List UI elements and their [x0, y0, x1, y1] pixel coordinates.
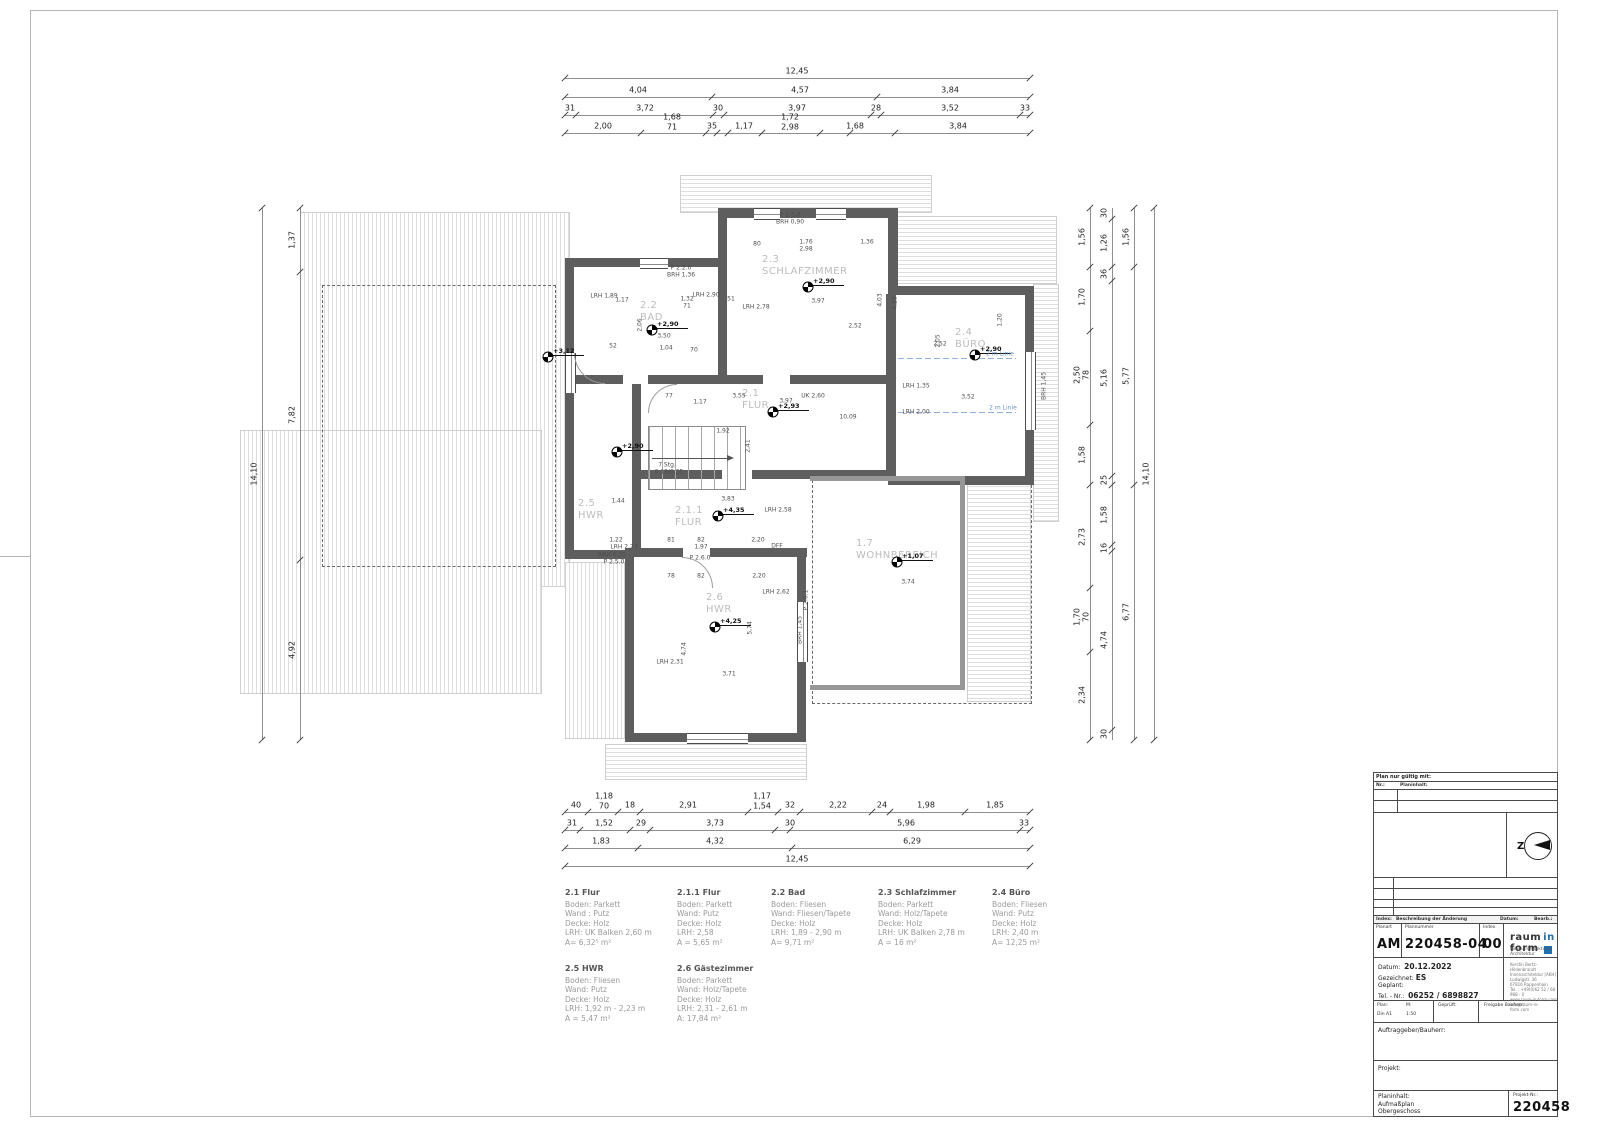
wall — [748, 733, 806, 742]
plan-annotation: 51 — [727, 296, 735, 303]
dim-label: 1,68 — [663, 113, 681, 122]
plan-annotation: BRH 1,45 — [1041, 372, 1048, 400]
geprueft-label: Geprüft: — [1438, 1003, 1457, 1008]
wall — [565, 258, 574, 353]
dim-label: 1,17 — [735, 122, 753, 131]
legend-entry-title: 2.5 HWR — [565, 964, 675, 974]
elevation-marker-icon — [710, 622, 721, 633]
dim-label: 5,77 — [1122, 367, 1131, 385]
dim-label: 1,83 — [592, 837, 610, 846]
elevation-marker-icon — [768, 407, 779, 418]
index-strip: Index: Beschreibung der Änderung Datum: … — [1374, 916, 1557, 924]
dim-label: 12,45 — [786, 855, 809, 864]
plan-annotation: DFF — [771, 543, 783, 550]
plan-annotation: 3,71 — [722, 671, 735, 678]
plan-annotation: P 2.5.0 — [604, 559, 625, 566]
wall — [625, 733, 687, 742]
legend-entry-line: LRH: 1,89 - 2,90 m — [771, 928, 881, 938]
elevation-marker-icon — [612, 447, 623, 458]
plan-annotation: 80 — [753, 241, 761, 248]
address-line: Tel. : +49(0)62 52 / 68 988 - 0 — [1510, 987, 1557, 997]
dim-label: 16 — [1100, 543, 1109, 553]
geplant-line: Geplant: — [1378, 982, 1404, 989]
dim-label: 1,98 — [917, 801, 935, 810]
legend-entry-line: Boden: Parkett — [565, 900, 675, 910]
dim-label: 30 — [713, 104, 723, 113]
legend-entry-line: Wand: Putz — [565, 985, 675, 995]
dim-label: 5,16 — [1100, 369, 1109, 387]
room-label-text: 2.4 — [955, 327, 986, 339]
plan-annotation: 1,22 — [609, 537, 622, 544]
planinhalt-line1: Aufmaßplan — [1378, 1101, 1414, 1108]
title-block: Plan nur gültig mit: Nr.: Planinhalt: Z … — [1373, 772, 1558, 1117]
two-meter-line — [898, 358, 1016, 359]
plan-annotation: BRH 0,90 — [776, 219, 804, 226]
address-line: Kerstin Bertz-Hildenbrandt — [1510, 962, 1557, 972]
legend-entry-line: Decke: Holz — [878, 919, 988, 929]
dim-label: 31 — [565, 104, 575, 113]
wall — [888, 286, 1034, 295]
dim-label: 30 — [785, 819, 795, 828]
dim-line — [1134, 208, 1135, 740]
dim-label: 3,97 — [788, 104, 806, 113]
dim-label: 6,29 — [903, 837, 921, 846]
plan-annotation: 4,23 — [892, 296, 899, 309]
legend-entry-line: A= 6,32⁵ m² — [565, 938, 675, 948]
plan-annotation: 1,36 — [860, 239, 873, 246]
plan-annotation: P 2.2.0 — [671, 265, 692, 272]
planart-value: AM — [1377, 937, 1401, 952]
legend-entry-line: Boden: Parkett — [878, 900, 988, 910]
projekt-row: Projekt: — [1374, 1061, 1557, 1091]
dim-line — [1154, 208, 1155, 740]
legend-entry-line: Decke: Holz — [677, 995, 787, 1005]
dim-label: 78 — [1082, 370, 1091, 380]
plan-annotation: BRH 0,35 — [598, 552, 626, 559]
window — [1025, 352, 1036, 430]
index-empty-row-2 — [1374, 801, 1557, 813]
plan-format: Din A1 — [1377, 1012, 1392, 1017]
plan-annotation: 3,55 — [732, 393, 745, 400]
plan-annotation: 82 — [697, 573, 705, 580]
rev-row-1 — [1374, 878, 1557, 889]
dim-label: 29 — [636, 819, 646, 828]
logo-raum: raum — [1510, 932, 1541, 943]
dim-label: 2,98 — [781, 123, 799, 132]
logo-in: in — [1543, 932, 1555, 943]
plan-id-row: Planart Plannummer Index AM 220458-04 00… — [1374, 924, 1557, 958]
plan-annotation: 77 — [665, 393, 673, 400]
window — [816, 208, 846, 220]
plan-annotation: LRH 2,00 — [902, 409, 929, 416]
dim-label: 36 — [1100, 269, 1109, 279]
plannummer-label: Plannummer — [1405, 925, 1434, 930]
projektnr-label: Projekt-Nr.: — [1513, 1093, 1538, 1098]
dim-label: 1,18 — [595, 792, 613, 801]
dim-label: 14,10 — [1142, 463, 1151, 486]
plan-annotation: 71 — [683, 303, 691, 310]
plan-annotation: 3,97 — [811, 298, 824, 305]
roof-hatch — [605, 744, 807, 780]
plan-annotation: 3,50 — [657, 333, 670, 340]
plan-annotation: 0,19/0,25 — [655, 469, 684, 476]
room-label-text: 2.2 — [640, 300, 663, 312]
plan-annotation: LRH 2,31 — [656, 659, 683, 666]
dim-label: 2,91 — [679, 801, 697, 810]
dim-line — [565, 133, 1030, 134]
plan-annotation: 1,97 — [694, 544, 707, 551]
dashed-outline — [322, 285, 556, 567]
planinhalt-label: Planinhalt: — [1378, 1093, 1410, 1100]
valid-strip: Plan nur gültig mit: — [1374, 773, 1557, 782]
legend-entry-line: Decke: Holz — [565, 919, 675, 929]
room-label-2.1.1: 2.1.1FLUR — [675, 505, 703, 529]
plan-annotation: 4,03 — [877, 293, 884, 306]
plan-annotation: LRH 2,62 — [762, 589, 789, 596]
dim-label: 1,70 — [1078, 288, 1087, 306]
legend-entry-line: A= 12,25 m² — [992, 938, 1102, 948]
plan-annotation: 10,09 — [839, 414, 856, 421]
plan-annotation: LRH 1,35 — [902, 383, 929, 390]
gezeichnet-value: ES — [1416, 973, 1427, 982]
room-label-text: 2.6 — [706, 592, 732, 604]
room-label-text: HWR — [706, 604, 732, 616]
dim-label: 1,58 — [1078, 446, 1087, 464]
plan-annotation: 2,20 — [751, 537, 764, 544]
dim-label: 5,96 — [897, 819, 915, 828]
planinhalt-line2: Obergeschoss — [1378, 1108, 1420, 1115]
legend-entry-line: Decke: Holz — [565, 995, 675, 1005]
legend-entry-title: 2.4 Büro — [992, 888, 1102, 898]
dim-label: 1,17 — [753, 792, 771, 801]
planinhalt-row: Planinhalt: Aufmaßplan Obergeschoss Proj… — [1374, 1091, 1557, 1116]
roof-hatch — [893, 216, 1057, 284]
plan-annotation: UK 2,60 — [801, 393, 825, 400]
dim-label: 30 — [1100, 208, 1109, 218]
dim-label: 28 — [871, 104, 881, 113]
dim-label: 3,73 — [706, 819, 724, 828]
plan-annotation: 81 — [667, 537, 675, 544]
dim-label: 12,45 — [786, 67, 809, 76]
legend-entry-line: Wand: Putz — [992, 909, 1102, 919]
bearb-col-label: Bearb.: — [1534, 917, 1552, 922]
room-label-2.6: 2.6HWR — [706, 592, 732, 616]
dim-label: 40 — [571, 801, 581, 810]
dim-line — [565, 97, 1030, 98]
plan-annotation: 2,20 — [752, 573, 765, 580]
dim-label: 30 — [1100, 729, 1109, 739]
dashed-outline — [812, 480, 1032, 704]
north-arrow-pointer — [1529, 840, 1550, 850]
dim-label: 1,56 — [1122, 228, 1131, 246]
roof-hatch — [1033, 284, 1059, 522]
plan-annotation: LRH 2,78 — [742, 304, 769, 311]
rev-row-4 — [1374, 908, 1557, 916]
legend-entry-line: A = 5,47 m² — [565, 1014, 675, 1024]
dim-line — [300, 208, 301, 740]
dim-label: 4,32 — [706, 837, 724, 846]
scale-row: Plan: Din A1 M: 1:50 Geprüft: Freigabe B… — [1374, 1001, 1557, 1023]
dim-label: 1,54 — [753, 802, 771, 811]
wall — [565, 393, 574, 558]
plan-annotation: 52 — [609, 343, 617, 350]
index-label: Index — [1483, 925, 1495, 930]
wall — [810, 685, 965, 690]
room-label-text: 2.5 — [578, 498, 604, 510]
wall — [960, 476, 965, 690]
dim-line — [1090, 208, 1091, 740]
dim-line — [565, 78, 1030, 79]
plannummer-value: 220458-04 — [1405, 937, 1487, 952]
dim-label: 25 — [1100, 475, 1109, 485]
dim-line — [565, 830, 1030, 831]
plan-annotation: BRH 1,45 — [797, 616, 804, 644]
plan-annotation: 1,17 — [693, 399, 706, 406]
legend-entry-title: 2.3 Schlafzimmer — [878, 888, 988, 898]
wall — [810, 476, 965, 481]
room-label-text: HWR — [578, 510, 604, 522]
legend-entry-line: A= 9,71 m² — [771, 938, 881, 948]
dim-label: 3,84 — [941, 86, 959, 95]
legend-entry-title: 2.1 Flur — [565, 888, 675, 898]
dim-line — [262, 208, 263, 740]
legend-entry-2.4: 2.4 Büro Boden: FliesenWand: PutzDecke: … — [992, 888, 1102, 947]
dim-label: 33 — [1020, 104, 1030, 113]
legend-entry-line: LRH: 1,92 m - 2,23 m — [565, 1004, 675, 1014]
window — [687, 733, 748, 744]
wall — [888, 208, 898, 294]
tel-value: 06252 / 6898827 — [1408, 991, 1479, 1000]
fold-mark — [0, 556, 30, 557]
dim-label: 18 — [625, 801, 635, 810]
legend-entry-2.5: 2.5 HWR Boden: FliesenWand: PutzDecke: H… — [565, 964, 675, 1023]
index-value: 00 — [1483, 937, 1502, 952]
valid-header-row: Nr.: Planinhalt: — [1374, 782, 1557, 790]
dim-line — [565, 866, 1030, 867]
plan-annotation: 2 m Linie — [986, 351, 1014, 358]
change-label: Beschreibung der Änderung — [1396, 917, 1467, 922]
room-label-text: FLUR — [675, 517, 703, 529]
elevation-marker-icon — [647, 325, 658, 336]
room-label-2.1: 2.1FLUR — [742, 388, 769, 412]
dim-label: 2,00 — [594, 122, 612, 131]
plan-annotation: 1,04 — [659, 345, 672, 352]
dim-label: 1,68 — [846, 122, 864, 131]
elevation-marker-icon — [892, 557, 903, 568]
stair-direction-line — [652, 458, 727, 459]
dim-label: 1,58 — [1100, 506, 1109, 524]
plan-annotation: LRH 2,90 — [692, 292, 719, 299]
room-label-text: 2.3 — [762, 254, 848, 266]
legend-entry-title: 2.6 Gästezimmer — [677, 964, 787, 974]
plan-annotation: 1,17 — [615, 297, 628, 304]
legend-entry-line: LRH: UK Balken 2,78 m — [878, 928, 988, 938]
logo-tagline: Innenarchitektur & Architektur — [1510, 947, 1557, 957]
scale-label: M: — [1406, 1003, 1411, 1008]
projekt-label: Projekt: — [1378, 1065, 1401, 1072]
staircase — [648, 426, 746, 490]
dim-label: 35 — [707, 122, 717, 131]
rev-row-3 — [1374, 900, 1557, 908]
elevation-value: +2,90 — [622, 442, 653, 451]
dim-label: 1,70 — [1073, 608, 1082, 626]
plan-annotation: LRH 2,23 — [610, 544, 637, 551]
plan-annotation: 4,74 — [681, 642, 688, 655]
legend-entry-line: Decke: Holz — [992, 919, 1102, 929]
plan-annotation: 1,76 — [799, 239, 812, 246]
dim-label: 24 — [877, 801, 887, 810]
wall — [625, 557, 634, 741]
wall — [718, 208, 754, 218]
legend-entry-line: Boden: Fliesen — [992, 900, 1102, 910]
plan-label: Plan: — [1377, 1003, 1388, 1008]
plan-annotation: 70 — [690, 347, 698, 354]
legend-entry-2.6: 2.6 Gästezimmer Boden: ParkettWand: Holz… — [677, 964, 787, 1023]
plan-annotation: 2,41 — [745, 439, 752, 452]
plan-annotation: BRH 1,36 — [667, 272, 695, 279]
legend-entry-line: Wand: Holz/Tapete — [677, 985, 787, 995]
tel-line: Tel. - Nr.: 06252 / 6898827 — [1378, 991, 1479, 1000]
elevation-value: +3,12 — [553, 347, 584, 356]
elevation-marker-icon — [543, 352, 554, 363]
legend-entry-line: LRH: 2,31 - 2,61 m — [677, 1004, 787, 1014]
elevation-value: +4,35 — [723, 506, 754, 515]
freigabe-label: Freigabe Bauherr: — [1484, 1003, 1524, 1008]
plan-annotation: 3,97 — [779, 398, 792, 405]
dim-label: 70 — [599, 802, 609, 811]
dim-label: 4,04 — [629, 86, 647, 95]
dim-label: 7,82 — [288, 406, 297, 424]
legend-entry-line: LRH: 2,40 m — [992, 928, 1102, 938]
info-row: Datum: 20.12.2022 Gezeichnet: ES Geplant… — [1374, 958, 1557, 1001]
datum-col-label: Datum: — [1500, 917, 1519, 922]
wall — [710, 548, 807, 557]
room-label-text: FLUR — [742, 400, 769, 412]
dim-label: 71 — [667, 123, 677, 132]
plan-annotation: P 2.6.0 — [690, 555, 711, 562]
room-label-text: 2.1 — [742, 388, 769, 400]
index-empty-row-1 — [1374, 790, 1557, 801]
legend-entry-2.3: 2.3 Schlafzimmer Boden: ParkettWand: Hol… — [878, 888, 988, 947]
drawing-sheet: 2.3SCHLAFZIMMER2.2BAD2.4BÜRO2.1FLUR2.5HW… — [0, 0, 1600, 1130]
legend-entry-2.1: 2.1 Flur Boden: ParkettWand : PutzDecke:… — [565, 888, 675, 947]
plan-annotation: 1,44 — [611, 498, 624, 505]
north-arrow-row: Z — [1374, 813, 1557, 878]
plan-annotation: LRH 2,58 — [764, 507, 791, 514]
room-label-2.3: 2.3SCHLAFZIMMER — [762, 254, 848, 278]
dim-label: 1,56 — [1078, 228, 1087, 246]
elevation-marker-icon — [970, 350, 981, 361]
plan-annotation: 2,52 — [848, 323, 861, 330]
legend-entry-line: Wand : Putz — [565, 909, 675, 919]
planinhalt-col-label: Planinhalt: — [1400, 783, 1428, 788]
plan-annotation: P 2.6.1 — [803, 590, 810, 611]
planart-label: Planart — [1376, 925, 1392, 930]
elevation-marker-icon — [803, 282, 814, 293]
plan-annotation: 78 — [667, 573, 675, 580]
legend-entry-title: 2.2 Bad — [771, 888, 881, 898]
dim-label: 31 — [567, 819, 577, 828]
legend-entry-line: Decke: Holz — [771, 919, 881, 929]
plan-annotation: 2 m Linie — [989, 405, 1017, 412]
wall — [797, 662, 806, 741]
legend-entry-line: Wand: Holz/Tapete — [878, 909, 988, 919]
dim-label: 1,72 — [781, 113, 799, 122]
gezeichnet-line: Gezeichnet: ES — [1378, 973, 1426, 982]
room-label-text: 1.7 — [856, 538, 938, 550]
plan-annotation: 82 — [697, 537, 705, 544]
datum-line: Datum: 20.12.2022 — [1378, 962, 1452, 971]
elevation-value: +2,90 — [813, 277, 844, 286]
elevation-marker-icon — [713, 511, 724, 522]
legend-entry-line: A = 16 m² — [878, 938, 988, 948]
wall — [1025, 286, 1034, 352]
elevation-value: +2,90 — [657, 320, 688, 329]
plan-annotation: 2,98 — [799, 246, 812, 253]
plan-annotation: 1,32 — [680, 296, 693, 303]
legend-entry-line: LRH: UK Balken 2,60 m — [565, 928, 675, 938]
dim-label: 1,85 — [986, 801, 1004, 810]
dim-label: 2,50 — [1073, 366, 1082, 384]
roof-hatch — [565, 562, 625, 739]
dim-label: 2,22 — [829, 801, 847, 810]
dim-label: 3,84 — [949, 122, 967, 131]
room-label-text: 2.1.1 — [675, 505, 703, 517]
dim-label: 3,72 — [636, 104, 654, 113]
plan-annotation: 3,83 — [721, 496, 734, 503]
dim-label: 4,92 — [288, 641, 297, 659]
room-label-2.5: 2.5HWR — [578, 498, 604, 522]
plan-annotation: LRH 1,89 — [590, 293, 617, 300]
rev-row-2 — [1374, 889, 1557, 900]
dim-label: 32 — [785, 801, 795, 810]
projektnr-value: 220458 — [1513, 1100, 1570, 1115]
legend-entry-line: Boden: Parkett — [677, 976, 787, 986]
legend-entry-line: Boden: Fliesen — [565, 976, 675, 986]
elevation-value: +1,07 — [902, 552, 933, 561]
wall — [886, 294, 896, 476]
legend-entry-line: Wand: Fliesen/Tapete — [771, 909, 881, 919]
scale-value: 1:50 — [1406, 1012, 1416, 1017]
auftraggeber-label: Auftraggeber/Bauherr: — [1378, 1027, 1446, 1034]
legend-entry-2.2: 2.2 Bad Boden: FliesenWand: Fliesen/Tape… — [771, 888, 881, 947]
nr-label: Nr.: — [1376, 783, 1385, 788]
dim-label: 33 — [1019, 819, 1029, 828]
index-strip-label: Index: — [1376, 917, 1392, 922]
dim-label: 1,26 — [1100, 234, 1109, 252]
plan-annotation: 7 Stg. — [658, 462, 676, 469]
datum-value: 20.12.2022 — [1404, 962, 1451, 971]
dim-label: 4,57 — [791, 86, 809, 95]
dim-label: 2,34 — [1078, 686, 1087, 704]
legend-entry-line: Boden: Fliesen — [771, 900, 881, 910]
dim-label: 6,77 — [1122, 603, 1131, 621]
wall — [790, 375, 888, 384]
wall — [565, 258, 640, 267]
plan-annotation: 1,20 — [997, 313, 1004, 326]
plan-annotation: 2,06 — [637, 318, 644, 331]
dim-label: 2,73 — [1078, 528, 1087, 546]
legend-entry-line: A: 17,84 m² — [677, 1014, 787, 1024]
stair-arrow-icon — [727, 455, 737, 461]
plan-annotation: P 2.3.0 — [780, 212, 801, 219]
dim-label: 1,37 — [288, 231, 297, 249]
dim-label: 4,74 — [1100, 631, 1109, 649]
wall — [648, 375, 763, 384]
dim-label: 3,52 — [941, 104, 959, 113]
plan-annotation: 2,05 — [935, 334, 942, 347]
dim-label: 14,10 — [250, 463, 259, 486]
